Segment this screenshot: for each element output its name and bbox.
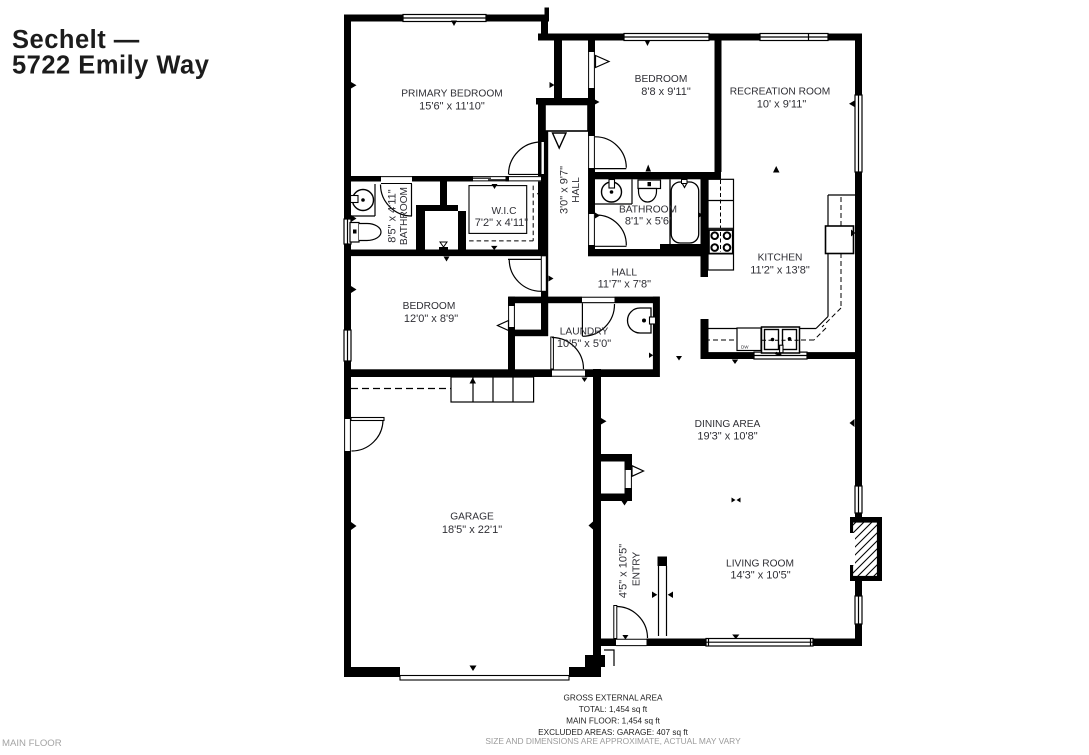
svg-text:SIZE AND DIMENSIONS ARE APPROX: SIZE AND DIMENSIONS ARE APPROXIMATE, ACT… [485, 736, 741, 746]
svg-text:12'0" x 8'9": 12'0" x 8'9" [404, 313, 458, 325]
svg-text:GARAGE: GARAGE [450, 512, 494, 523]
svg-text:8'1" x 5'6': 8'1" x 5'6' [625, 216, 671, 228]
svg-text:11'7" x 7'8": 11'7" x 7'8" [598, 279, 651, 291]
svg-text:14'3" x 10'5": 14'3" x 10'5" [730, 570, 790, 582]
svg-text:HALL: HALL [571, 177, 582, 203]
svg-text:4'5" x 10'5": 4'5" x 10'5" [617, 544, 629, 598]
svg-text:MAIN FLOOR: 1,454 sq ft: MAIN FLOOR: 1,454 sq ft [566, 717, 660, 726]
svg-text:BATHROOM: BATHROOM [619, 205, 677, 216]
svg-text:MAIN FLOOR: MAIN FLOOR [2, 738, 62, 749]
svg-text:GROSS EXTERNAL AREA: GROSS EXTERNAL AREA [564, 694, 663, 703]
svg-text:8'8 x 9'11": 8'8 x 9'11" [641, 86, 691, 98]
svg-text:3'0" x 9'7": 3'0" x 9'7" [558, 166, 570, 214]
svg-text:10'5" x 5'0": 10'5" x 5'0" [557, 338, 611, 350]
svg-text:8'5" x 4'11": 8'5" x 4'11" [386, 189, 398, 242]
svg-text:19'3" x 10'8": 19'3" x 10'8" [697, 431, 757, 443]
svg-text:BATHROOM: BATHROOM [399, 187, 410, 245]
svg-text:LIVING ROOM: LIVING ROOM [726, 559, 794, 570]
svg-text:15'6" x 11'10": 15'6" x 11'10" [419, 101, 485, 113]
svg-text:DW: DW [741, 345, 749, 350]
svg-text:DINING AREA: DINING AREA [695, 419, 761, 430]
svg-text:BEDROOM: BEDROOM [635, 74, 688, 85]
svg-text:10' x 9'11": 10' x 9'11" [757, 99, 807, 111]
svg-text:ENTRY: ENTRY [632, 552, 643, 587]
svg-text:LAUNDRY: LAUNDRY [560, 327, 609, 338]
svg-text:PRIMARY BEDROOM: PRIMARY BEDROOM [401, 89, 503, 100]
svg-text:KITCHEN: KITCHEN [758, 253, 803, 264]
svg-text:7'2" x 4'11": 7'2" x 4'11" [475, 217, 528, 229]
svg-text:RECREATION ROOM: RECREATION ROOM [730, 87, 831, 98]
svg-text:TOTAL: 1,454 sq ft: TOTAL: 1,454 sq ft [579, 705, 648, 714]
svg-text:11'2" x 13'8": 11'2" x 13'8" [750, 265, 810, 277]
svg-text:5722 Emily Way: 5722 Emily Way [12, 52, 210, 80]
svg-text:Sechelt —: Sechelt — [12, 26, 140, 54]
svg-text:BEDROOM: BEDROOM [403, 301, 456, 312]
svg-text:18'5" x 22'1": 18'5" x 22'1" [442, 524, 502, 536]
svg-text:W.I.C: W.I.C [492, 206, 517, 217]
svg-text:HALL: HALL [612, 268, 638, 279]
